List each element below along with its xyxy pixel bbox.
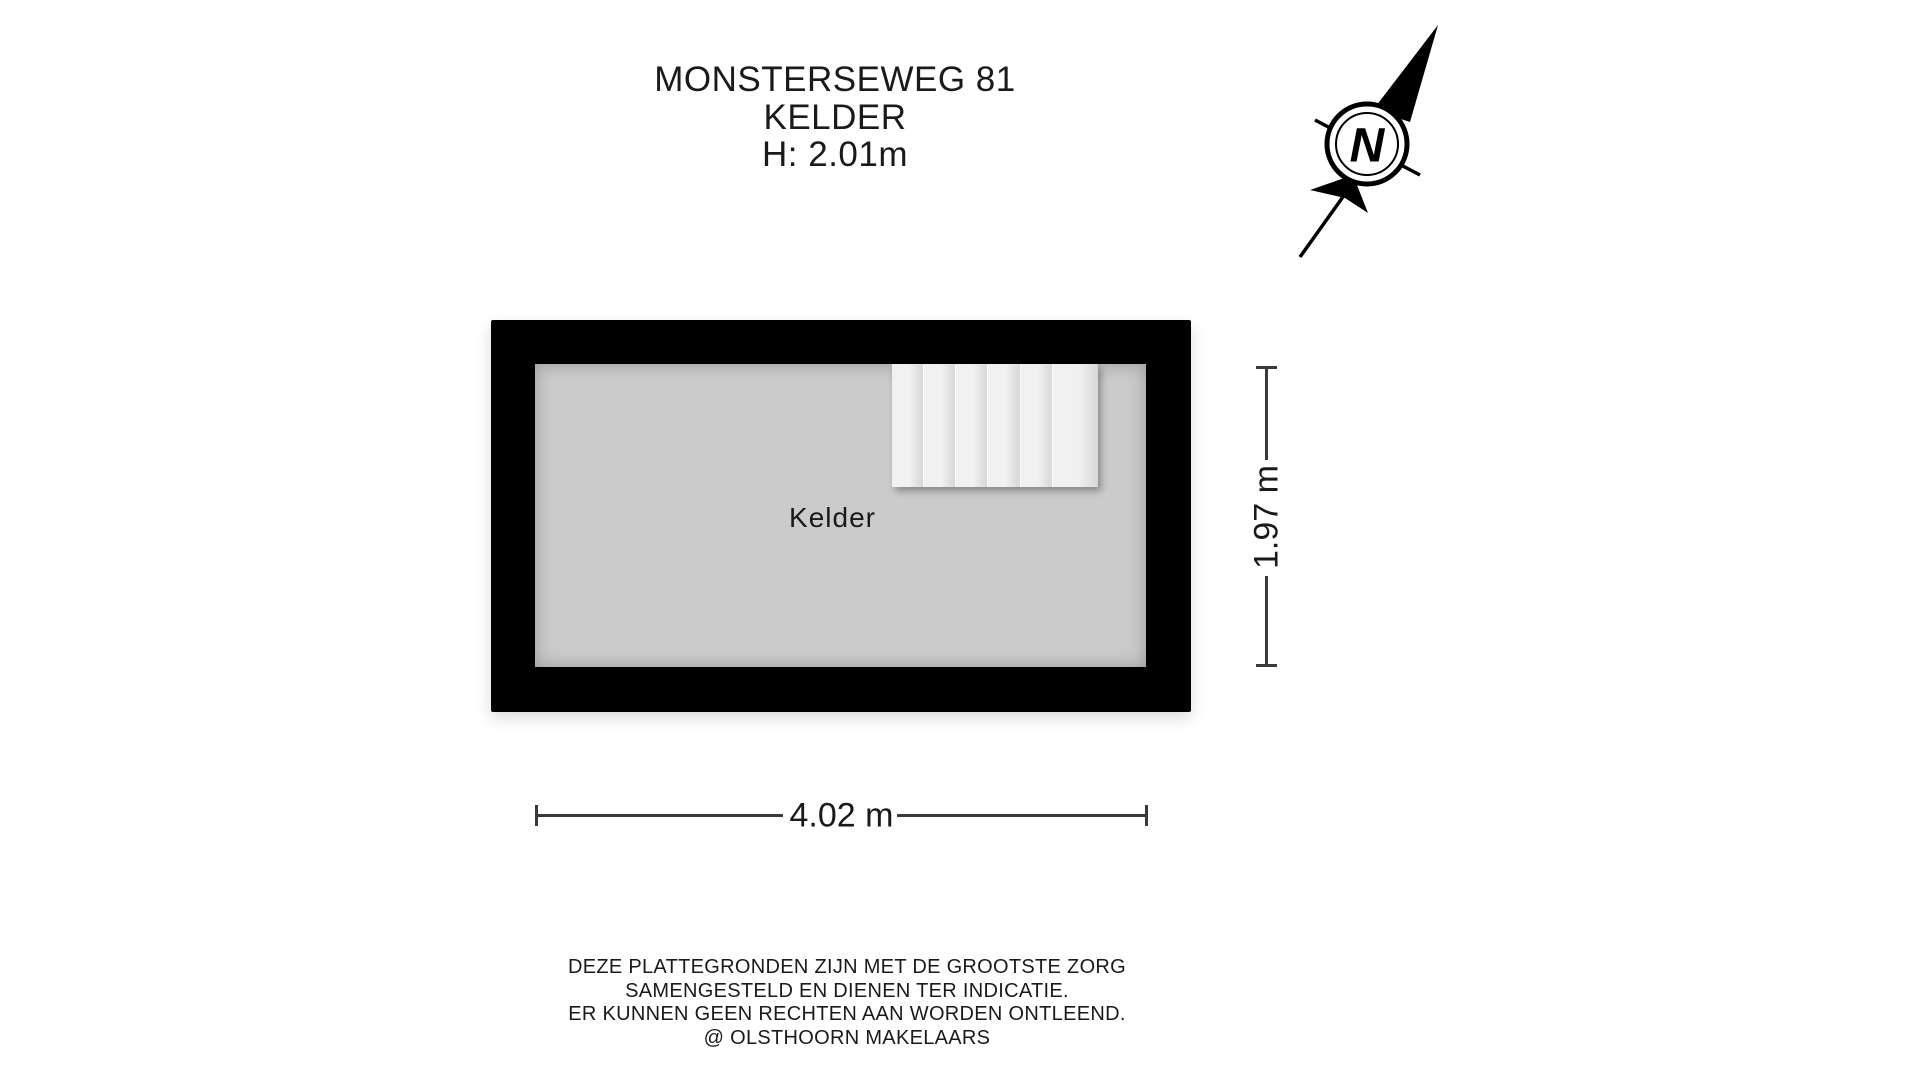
disclaimer-line: DEZE PLATTEGRONDEN ZIJN MET DE GROOTSTE …: [497, 956, 1197, 980]
disclaimer-line: ER KUNNEN GEEN RECHTEN AAN WORDEN ONTLEE…: [497, 1003, 1197, 1027]
dimension-line: [1265, 366, 1268, 460]
stair-tread: [1020, 364, 1052, 487]
dimension-line: [1265, 576, 1268, 667]
staircase: [892, 364, 1098, 487]
disclaimer-block: DEZE PLATTEGRONDEN ZIJN MET DE GROOTSTE …: [497, 956, 1197, 1050]
title-block: MONSTERSEWEG 81 KELDER H: 2.01m: [485, 61, 1185, 174]
basement-floor: Kelder: [535, 364, 1146, 667]
stair-tread: [923, 364, 955, 487]
stair-tread: [987, 364, 1019, 487]
title-ceiling-height: H: 2.01m: [485, 136, 1185, 174]
basement-walls: Kelder: [491, 320, 1191, 712]
height-dimension-label: 1.97 m: [1247, 465, 1286, 569]
disclaimer-line: SAMENGESTELD EN DIENEN TER INDICATIE.: [497, 980, 1197, 1004]
title-address: MONSTERSEWEG 81: [485, 61, 1185, 99]
height-dimension: 1.97 m: [1256, 366, 1277, 667]
width-dimension: 4.02 m: [535, 805, 1148, 826]
stair-tread: [892, 364, 923, 487]
disclaimer-line: @ OLSTHOORN MAKELAARS: [497, 1027, 1197, 1051]
floorplan-page: MONSTERSEWEG 81 KELDER H: 2.01m N Kelder…: [0, 0, 1920, 1080]
dimension-line: [535, 814, 783, 817]
width-dimension-label: 4.02 m: [790, 796, 894, 835]
title-floor-name: KELDER: [485, 99, 1185, 137]
north-compass-icon: N: [1290, 15, 1460, 275]
room-label: Kelder: [535, 502, 1130, 534]
dimension-tick: [1256, 664, 1277, 667]
dimension-tick: [1145, 805, 1148, 826]
compass-north-letter: N: [1350, 120, 1386, 173]
stair-tread: [1052, 364, 1098, 487]
stair-tread: [955, 364, 987, 487]
dimension-line: [897, 814, 1148, 817]
